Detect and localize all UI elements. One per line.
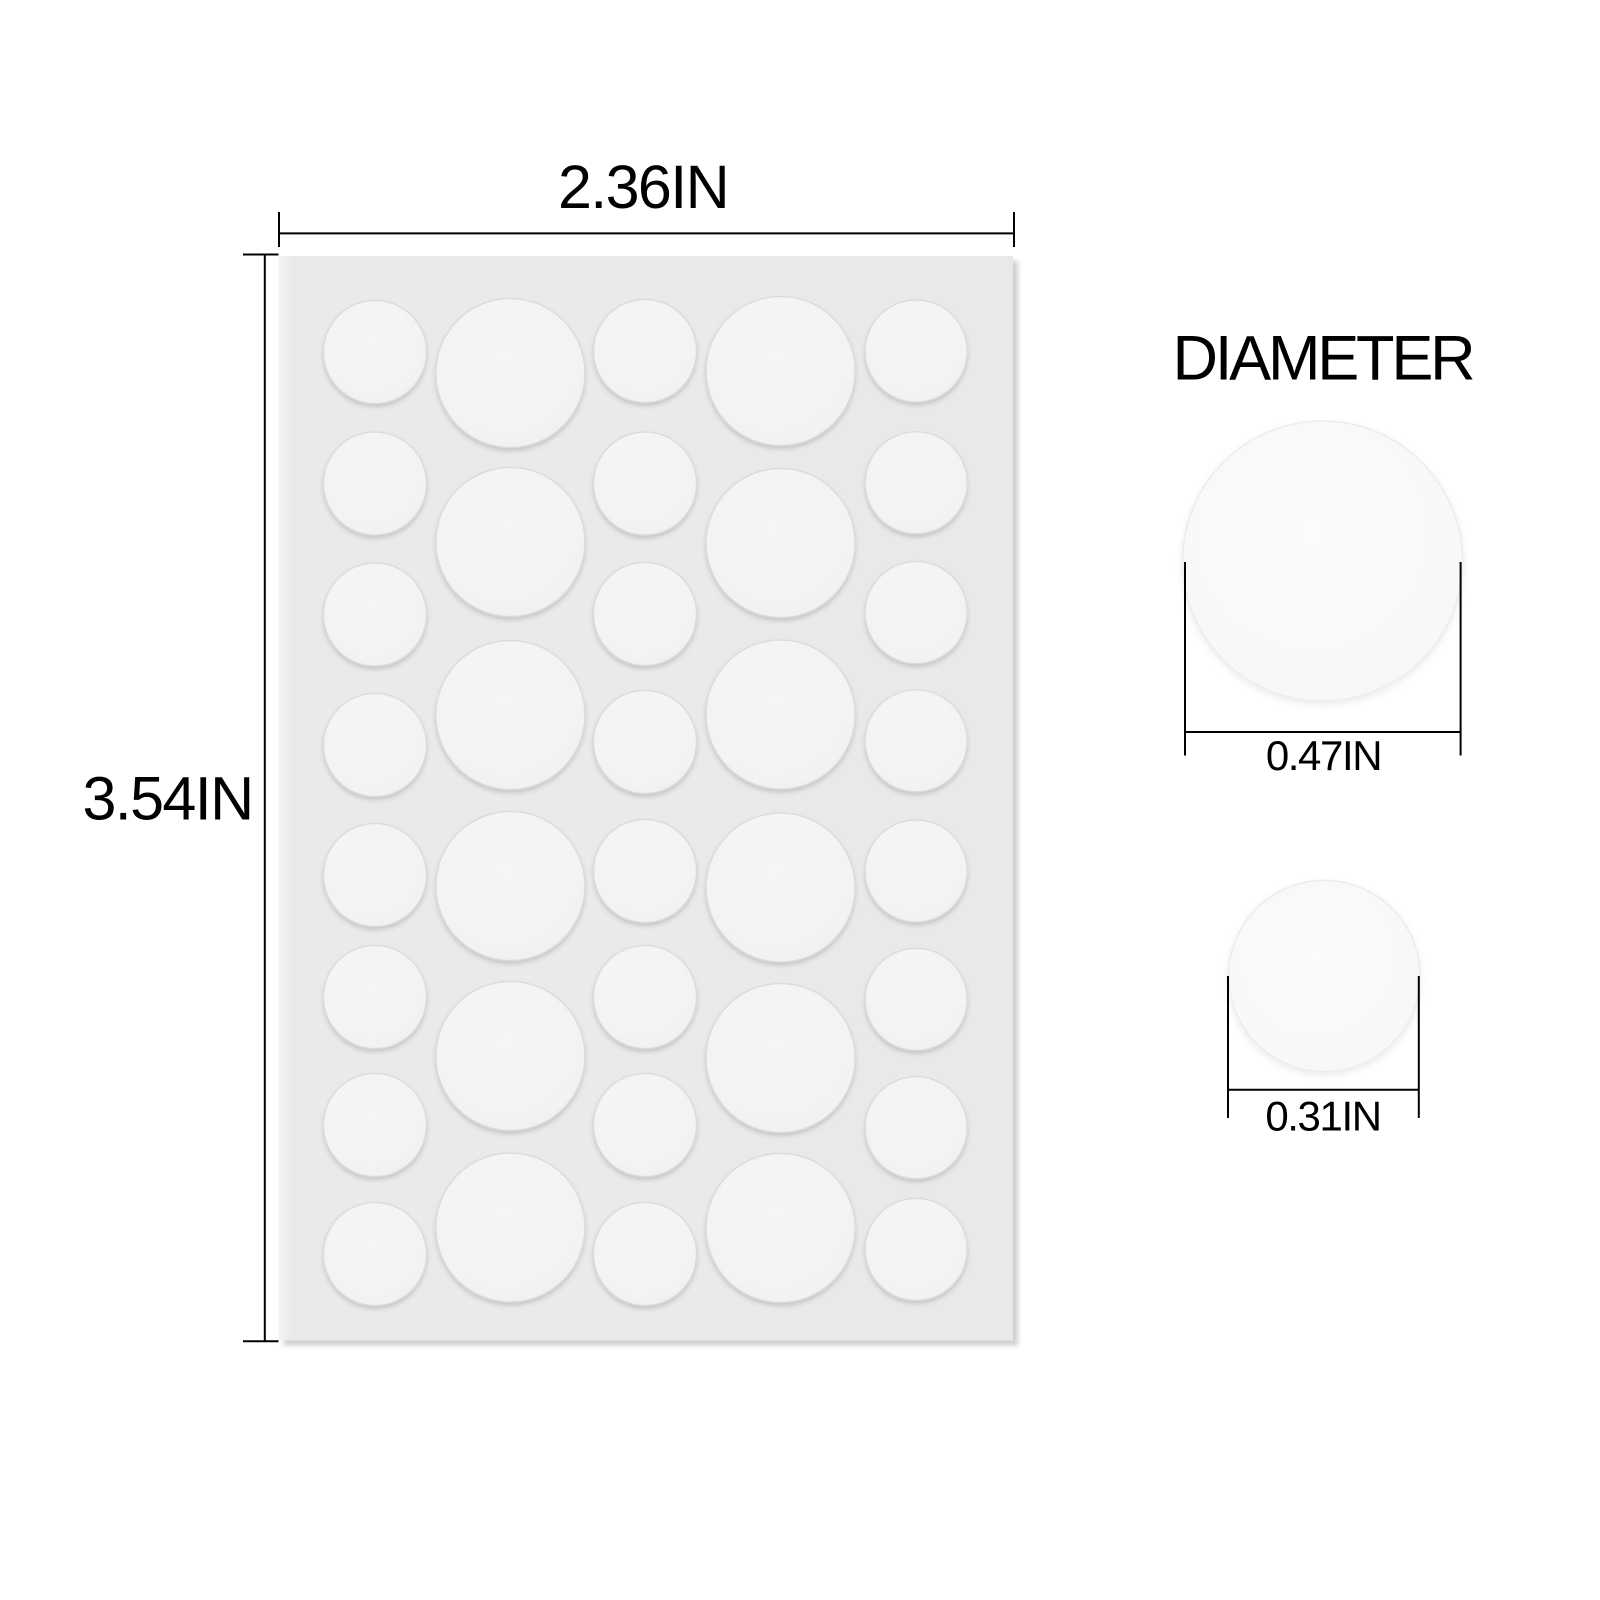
svg-text:0.47IN: 0.47IN xyxy=(1266,732,1381,779)
svg-text:2.36IN: 2.36IN xyxy=(558,153,728,221)
svg-text:3.54IN: 3.54IN xyxy=(82,765,252,833)
svg-text:DIAMETER: DIAMETER xyxy=(1173,324,1474,394)
svg-text:0.31IN: 0.31IN xyxy=(1265,1092,1380,1139)
